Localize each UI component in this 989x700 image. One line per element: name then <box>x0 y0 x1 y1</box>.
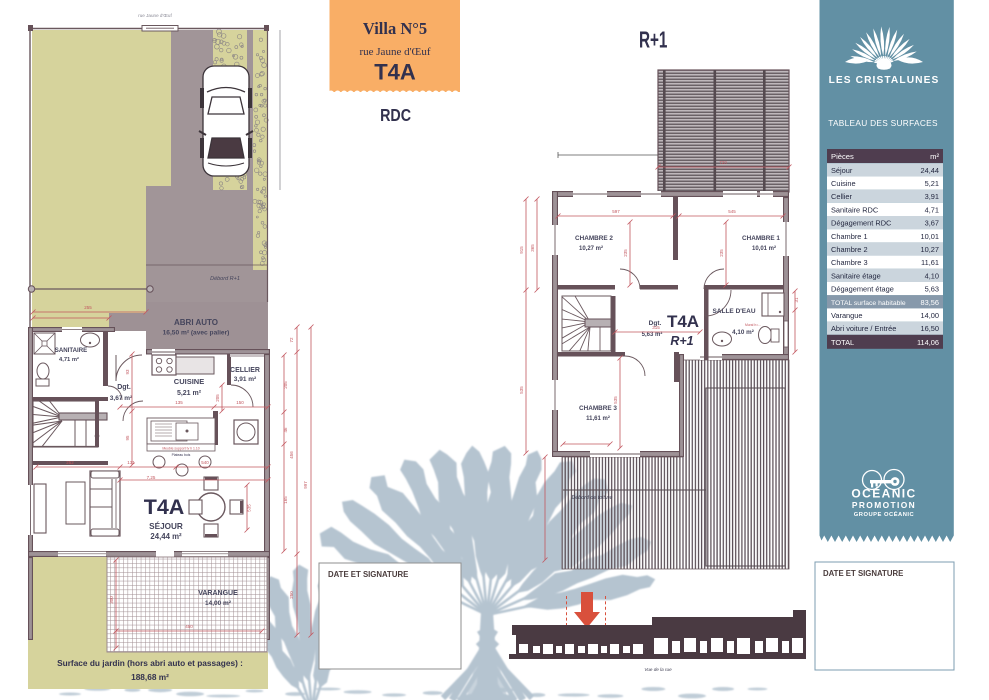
svg-text:Sanitaire étage: Sanitaire étage <box>831 271 881 280</box>
svg-text:252: 252 <box>66 460 74 465</box>
svg-text:915: 915 <box>519 246 524 254</box>
svg-text:Dgt.: Dgt. <box>117 384 131 391</box>
svg-text:Abri voiture / Entrée: Abri voiture / Entrée <box>831 324 896 333</box>
svg-text:CUISINE: CUISINE <box>174 377 204 386</box>
svg-text:Débord de toiture: Débord de toiture <box>572 495 613 501</box>
svg-text:456: 456 <box>289 451 294 459</box>
svg-text:46: 46 <box>283 427 288 433</box>
svg-text:540: 540 <box>201 460 209 465</box>
svg-text:Dégagement RDC: Dégagement RDC <box>831 219 892 228</box>
svg-text:7,25: 7,25 <box>147 475 156 480</box>
svg-text:4,10 m²: 4,10 m² <box>732 329 754 336</box>
svg-text:10,01: 10,01 <box>921 232 940 241</box>
svg-text:205: 205 <box>215 394 220 402</box>
svg-text:3,67: 3,67 <box>925 219 939 228</box>
svg-text:DATE ET SIGNATURE: DATE ET SIGNATURE <box>328 570 408 579</box>
svg-text:135: 135 <box>175 400 183 405</box>
svg-text:5,63: 5,63 <box>925 285 939 294</box>
svg-text:131: 131 <box>127 460 135 465</box>
svg-text:16,50 m² (avec palier): 16,50 m² (avec palier) <box>163 330 230 337</box>
svg-text:Pièces: Pièces <box>831 152 854 161</box>
svg-text:Cellier: Cellier <box>831 192 852 201</box>
svg-text:997: 997 <box>303 481 308 489</box>
svg-text:PROMOTION: PROMOTION <box>852 500 916 510</box>
svg-text:DATE ET SIGNATURE: DATE ET SIGNATURE <box>823 569 903 578</box>
svg-text:m²: m² <box>930 152 939 161</box>
svg-text:CELLIER: CELLIER <box>230 367 260 374</box>
svg-text:93: 93 <box>125 369 130 375</box>
svg-text:365: 365 <box>530 244 535 252</box>
svg-text:Varangue: Varangue <box>831 311 863 320</box>
svg-text:10,01 m²: 10,01 m² <box>752 245 776 252</box>
svg-text:TABLEAU DES SURFACES: TABLEAU DES SURFACES <box>828 118 938 128</box>
svg-text:R+1: R+1 <box>670 334 693 348</box>
svg-text:4,71: 4,71 <box>925 205 939 214</box>
svg-text:Vue de la rue: Vue de la rue <box>644 667 672 672</box>
svg-text:11,61: 11,61 <box>921 258 939 267</box>
svg-text:10,27: 10,27 <box>921 245 940 254</box>
svg-text:255: 255 <box>84 305 92 310</box>
svg-text:16,50: 16,50 <box>921 324 940 333</box>
svg-text:GROUPE OCÉANIC: GROUPE OCÉANIC <box>854 510 915 518</box>
svg-text:R+1: R+1 <box>639 27 668 53</box>
svg-text:Cuisine: Cuisine <box>831 179 856 188</box>
svg-text:720: 720 <box>719 160 727 165</box>
svg-text:VARANGUE: VARANGUE <box>198 590 238 597</box>
svg-text:5,21: 5,21 <box>925 179 939 188</box>
svg-text:ABRI AUTO: ABRI AUTO <box>174 318 218 327</box>
svg-text:315: 315 <box>652 325 660 330</box>
svg-text:114,06: 114,06 <box>917 338 939 347</box>
svg-text:CHAMBRE 2: CHAMBRE 2 <box>575 235 613 242</box>
svg-text:Mural h=...: Mural h=... <box>745 323 761 327</box>
svg-text:11,61 m²: 11,61 m² <box>586 415 610 422</box>
svg-text:Plateau bois: Plateau bois <box>172 453 191 457</box>
svg-text:205: 205 <box>283 381 288 389</box>
svg-text:4,10: 4,10 <box>925 271 939 280</box>
svg-text:SÉJOUR: SÉJOUR <box>149 521 183 531</box>
svg-text:250: 250 <box>289 591 294 599</box>
svg-text:CHAMBRE 1: CHAMBRE 1 <box>742 235 780 242</box>
svg-text:300: 300 <box>109 596 114 604</box>
svg-text:SANITAIRE: SANITAIRE <box>55 347 87 354</box>
svg-text:10,27 m²: 10,27 m² <box>579 245 603 252</box>
svg-text:TOTAL surface habitable: TOTAL surface habitable <box>831 300 906 307</box>
svg-text:188,68 m²: 188,68 m² <box>131 672 169 682</box>
svg-text:TOTAL: TOTAL <box>831 338 854 347</box>
svg-text:535: 535 <box>519 386 524 394</box>
svg-text:14,00 m²: 14,00 m² <box>205 600 232 607</box>
svg-text:Chambre 3: Chambre 3 <box>831 258 868 267</box>
svg-text:OCÉANIC: OCÉANIC <box>851 486 916 501</box>
svg-text:Meuble support tv h 1.10: Meuble support tv h 1.10 <box>162 447 199 451</box>
svg-text:SALLE D'EAU: SALLE D'EAU <box>712 308 755 315</box>
svg-text:Chambre 2: Chambre 2 <box>831 245 868 254</box>
svg-text:235: 235 <box>623 249 628 257</box>
svg-text:Chambre 1: Chambre 1 <box>831 232 868 241</box>
svg-text:rue Jaune d'Œuf: rue Jaune d'Œuf <box>138 13 172 18</box>
svg-text:14,00: 14,00 <box>921 311 940 320</box>
svg-text:5,21 m²: 5,21 m² <box>177 390 202 397</box>
svg-text:Villa N°5: Villa N°5 <box>363 19 427 38</box>
svg-text:Surface du jardin (hors abri a: Surface du jardin (hors abri auto et pas… <box>57 658 243 668</box>
svg-text:rue Jaune d'Œuf: rue Jaune d'Œuf <box>359 46 430 58</box>
svg-text:450: 450 <box>185 624 193 629</box>
svg-text:24,44 m²: 24,44 m² <box>150 532 182 541</box>
svg-text:165: 165 <box>283 496 288 504</box>
svg-text:24,44: 24,44 <box>921 166 940 175</box>
svg-text:T4A: T4A <box>374 60 416 85</box>
svg-text:CHAMBRE 3: CHAMBRE 3 <box>579 405 617 412</box>
svg-text:Dégagement étage: Dégagement étage <box>831 285 894 294</box>
svg-text:4,71 m²: 4,71 m² <box>59 356 79 363</box>
svg-text:Séjour: Séjour <box>831 166 853 175</box>
svg-text:LES CRISTALUNES: LES CRISTALUNES <box>829 75 940 86</box>
svg-text:T4A: T4A <box>144 495 185 519</box>
svg-text:3,91 m²: 3,91 m² <box>234 376 257 383</box>
svg-text:535: 535 <box>613 396 618 404</box>
svg-text:72: 72 <box>289 337 294 343</box>
svg-text:535: 535 <box>247 504 252 512</box>
svg-text:235: 235 <box>719 249 724 257</box>
svg-text:3,91: 3,91 <box>925 192 939 201</box>
svg-text:83,56: 83,56 <box>921 298 940 307</box>
svg-text:3,67 m²: 3,67 m² <box>110 395 133 402</box>
svg-text:T4A: T4A <box>667 312 699 331</box>
svg-text:31: 31 <box>794 297 799 303</box>
svg-text:95: 95 <box>125 435 130 441</box>
svg-text:Débord R+1: Débord R+1 <box>210 276 240 282</box>
svg-text:RDC: RDC <box>380 105 411 125</box>
svg-text:150: 150 <box>236 400 244 405</box>
svg-text:545: 545 <box>728 209 736 214</box>
svg-text:597: 597 <box>612 209 620 214</box>
svg-text:Sanitaire RDC: Sanitaire RDC <box>831 205 879 214</box>
